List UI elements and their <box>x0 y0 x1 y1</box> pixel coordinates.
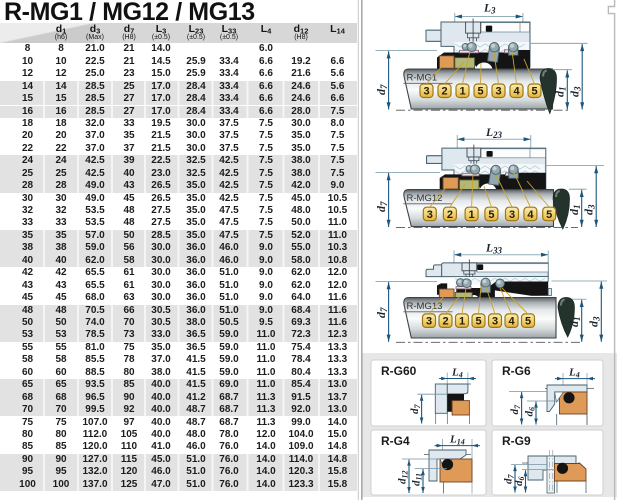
svg-text:L3: L3 <box>483 3 496 16</box>
svg-text:d7: d7 <box>374 307 389 318</box>
svg-text:d7: d7 <box>374 84 389 95</box>
svg-text:1: 1 <box>459 86 465 98</box>
svg-text:3: 3 <box>492 316 498 328</box>
svg-text:d3: d3 <box>587 316 602 327</box>
svg-text:R-G60: R-G60 <box>381 364 417 378</box>
svg-text:3: 3 <box>426 316 432 328</box>
svg-text:d3: d3 <box>567 86 582 97</box>
svg-text:5: 5 <box>475 316 481 328</box>
svg-text:L33: L33 <box>485 243 503 256</box>
svg-text:3: 3 <box>423 86 429 98</box>
svg-text:R-MG1: R-MG1 <box>407 73 438 84</box>
svg-text:3: 3 <box>509 209 515 221</box>
svg-text:3: 3 <box>495 86 501 98</box>
svg-text:2: 2 <box>441 86 447 98</box>
svg-text:d7: d7 <box>374 201 389 212</box>
svg-text:5: 5 <box>488 209 494 221</box>
svg-text:2: 2 <box>447 209 453 221</box>
svg-text:L23: L23 <box>485 127 503 140</box>
svg-text:d3: d3 <box>581 204 596 215</box>
svg-text:2: 2 <box>442 316 448 328</box>
svg-text:R-G6: R-G6 <box>502 364 531 378</box>
svg-text:5: 5 <box>477 86 483 98</box>
svg-text:R-MG13: R-MG13 <box>407 301 443 312</box>
svg-text:R-G4: R-G4 <box>381 434 410 448</box>
svg-text:3: 3 <box>427 209 433 221</box>
svg-text:R-G9: R-G9 <box>502 434 531 448</box>
svg-text:5: 5 <box>546 209 552 221</box>
svg-text:1: 1 <box>469 209 475 221</box>
svg-text:5: 5 <box>525 316 531 328</box>
svg-text:1: 1 <box>459 316 465 328</box>
svg-text:4: 4 <box>527 209 534 221</box>
svg-text:4: 4 <box>513 86 520 98</box>
svg-text:5: 5 <box>531 86 537 98</box>
svg-text:4: 4 <box>508 316 515 328</box>
